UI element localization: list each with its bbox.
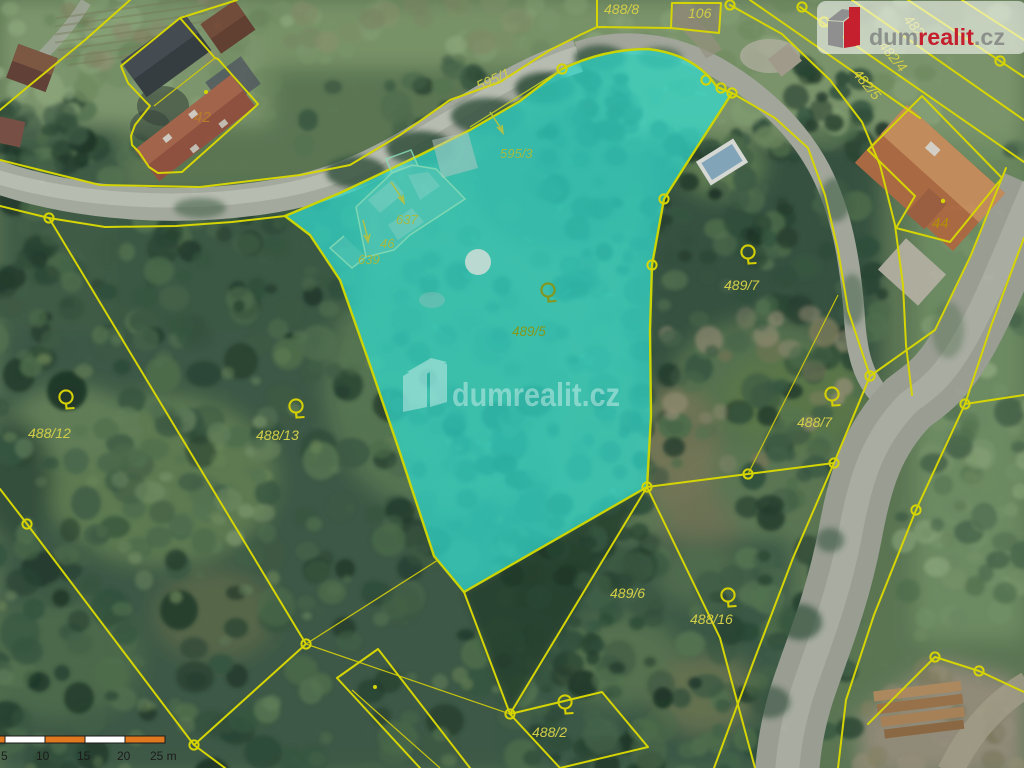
svg-text:20: 20 bbox=[117, 749, 131, 763]
svg-text:dumrealit.cz: dumrealit.cz bbox=[869, 24, 1005, 50]
svg-text:10: 10 bbox=[36, 749, 50, 763]
svg-text:5: 5 bbox=[1, 749, 8, 763]
svg-text:dumrealit.cz: dumrealit.cz bbox=[452, 376, 620, 413]
svg-text:25 m: 25 m bbox=[150, 749, 177, 763]
svg-text:15: 15 bbox=[77, 749, 91, 763]
